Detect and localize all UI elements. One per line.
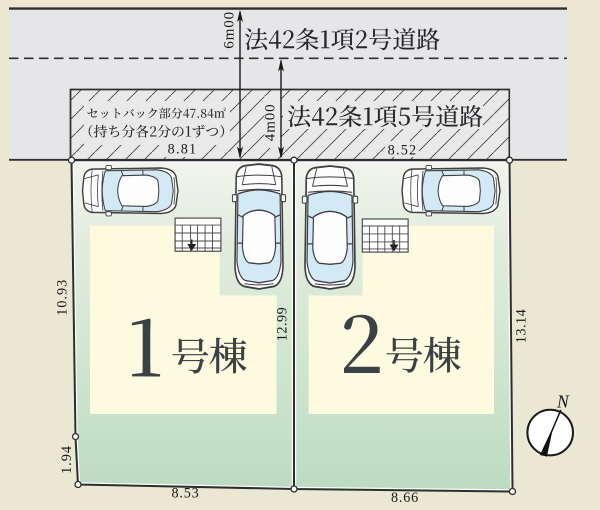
svg-text:6m00: 6m00 bbox=[222, 11, 238, 49]
svg-text:12.99: 12.99 bbox=[274, 307, 290, 341]
svg-text:8.53: 8.53 bbox=[171, 485, 199, 501]
svg-text:13.14: 13.14 bbox=[513, 309, 529, 343]
svg-text:8.81: 8.81 bbox=[168, 142, 198, 158]
svg-text:1.94: 1.94 bbox=[59, 445, 75, 474]
svg-text:4m00: 4m00 bbox=[262, 103, 278, 141]
svg-text:N: N bbox=[556, 392, 570, 412]
svg-text:8.66: 8.66 bbox=[391, 490, 419, 506]
svg-text:8.52: 8.52 bbox=[388, 143, 418, 159]
svg-text:10.93: 10.93 bbox=[54, 279, 70, 316]
